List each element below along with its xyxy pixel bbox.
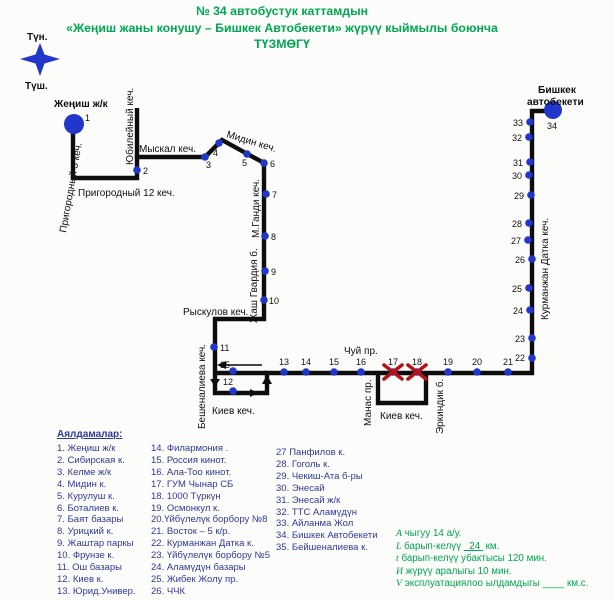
map-label: Курманжан Датка кеч. xyxy=(540,218,551,320)
stop-dot-30 xyxy=(525,171,533,179)
legend-item: 6. Боталиев к. xyxy=(57,503,136,515)
terminal-number-1: 1 xyxy=(85,113,90,123)
legend-item: 19. Осмонкул к. xyxy=(151,503,270,515)
map-label: М.Ганди кеч. xyxy=(251,179,262,238)
page: № 34 автобустук каттамдын «Жеңиш жаны ко… xyxy=(0,0,614,600)
map-label: Юбилейный кеч. xyxy=(124,88,136,165)
stop-number-5: 5 xyxy=(242,158,247,168)
legend-item: 24. Аламүдүн базары xyxy=(151,562,270,574)
legend-item: 25. Жибек Жолу пр. xyxy=(151,574,270,586)
stop-number-25: 25 xyxy=(512,284,522,294)
compass-star-icon xyxy=(20,43,60,76)
stats-text: км. xyxy=(483,541,499,552)
stop-number-23: 23 xyxy=(515,334,525,344)
stop-dot-7 xyxy=(262,190,270,198)
stats-line: V эксплуатациялоо ылдамдыгы ____ км.с. xyxy=(396,578,588,591)
stop-dot-19 xyxy=(444,368,452,376)
stats-text: барып-келүү xyxy=(401,541,463,552)
stop-number-4: 4 xyxy=(213,148,218,158)
terminal-number-34: 34 xyxy=(547,121,557,131)
stop-number-20: 20 xyxy=(472,357,482,367)
stop-number-19: 19 xyxy=(443,357,453,367)
legend-item: 18. 1000 Түркүн xyxy=(151,491,270,503)
legend-item: 28. Гоголь к. xyxy=(276,459,378,471)
map-label: Жеңиш ж/к xyxy=(53,99,109,110)
map-label: Мыскал кеч. xyxy=(139,144,196,155)
stop-dot-16 xyxy=(357,368,365,376)
legend-item: 34. Бишкек Автобекети xyxy=(276,530,378,542)
legend-item: 26. ЧЧК xyxy=(151,586,270,598)
legend-item: 12. Киев к. xyxy=(57,574,136,586)
legend-item: 8. Урицкий к. xyxy=(57,526,136,538)
stop-number-24: 24 xyxy=(513,306,523,316)
stop-dot-27 xyxy=(524,236,532,244)
stop-dot-24 xyxy=(526,306,534,314)
stop-number-28: 28 xyxy=(512,219,522,229)
legend-item: 30. Энесай xyxy=(276,483,378,495)
legend-item: 31. Энесай ж/к xyxy=(276,495,378,507)
compass-north-label: Түн. xyxy=(27,32,48,43)
stop-number-9: 9 xyxy=(271,267,276,277)
stats-line: И жүрүү аралыгы 10 мин. xyxy=(396,566,588,579)
stop-number-12: 12 xyxy=(223,377,233,387)
legend-item: 27 Панфилов к. xyxy=(276,447,378,459)
compass-south-label: Түш. xyxy=(25,81,48,92)
map-label: Киев кеч. xyxy=(380,411,423,422)
stop-dot-26 xyxy=(528,255,536,263)
stop-number-3: 3 xyxy=(206,160,211,170)
stop-dot-11 xyxy=(210,343,218,351)
stop-number-15: 15 xyxy=(329,357,339,367)
stop-dot-31 xyxy=(526,158,534,166)
legend-item: 3. Келме ж/к xyxy=(57,467,136,479)
stop-number-35: 35 xyxy=(220,360,230,370)
map-label: Киев кеч. xyxy=(212,406,255,417)
legend-item: 35. Бейшеналиева к. xyxy=(276,542,378,554)
stop-dot-21 xyxy=(504,368,512,376)
stop-dot-10 xyxy=(260,296,268,304)
map-label: Бешеналиева кеч. xyxy=(197,344,208,429)
stop-number-29: 29 xyxy=(514,191,524,201)
legend-item: 29. Чекиш-Ата б-ры xyxy=(276,471,378,483)
stop-number-31: 31 xyxy=(513,158,523,168)
stop-dot-20 xyxy=(473,368,481,376)
stop-number-6: 6 xyxy=(270,159,275,169)
stop-number-10: 10 xyxy=(269,296,279,306)
legend-column-3: 27 Панфилов к.28. Гоголь к.29. Чекиш-Ата… xyxy=(276,447,378,554)
stop-dot-23 xyxy=(528,334,536,342)
stop-number-2: 2 xyxy=(143,166,148,176)
stop-number-27: 27 xyxy=(511,236,521,246)
map-label: Жаш Гвардия б. xyxy=(248,248,260,323)
stop-dot-28 xyxy=(525,219,533,227)
legend-item: 13. Юрид.Универ. xyxy=(57,586,136,598)
map-label: Мидин кеч. xyxy=(225,129,277,155)
map-label: Чуй пр. xyxy=(344,346,378,357)
route-stats: А чыгуу 14 а/у.L барып-келүү 24 км.t бар… xyxy=(396,528,588,591)
legend-item: 20.Үйбүлелүк борбору №8 xyxy=(151,514,270,526)
stop-number-30: 30 xyxy=(512,171,522,181)
stop-number-22: 22 xyxy=(515,353,525,363)
stop-dot-33 xyxy=(526,118,534,126)
stop-dot-5 xyxy=(243,150,251,158)
legend-item: 11. Ош базары xyxy=(57,562,136,574)
stop-number-33: 33 xyxy=(513,118,523,128)
legend-item: 33. Айланма Жол xyxy=(276,518,378,530)
arrow-east-icon xyxy=(250,389,258,397)
stop-dot-4 xyxy=(215,139,223,147)
stats-text: эксплуатациялоо ылдамдыгы ____ км.с. xyxy=(402,578,588,589)
legend-item: 32. ТТС Аламүдүн xyxy=(276,507,378,519)
map-label: Пригородный 12 кеч. xyxy=(78,188,175,199)
legend-item: 5. Курулуш к. xyxy=(57,491,136,503)
stop-dot-6 xyxy=(260,159,268,167)
legend-item: 21. Восток – 5 к/р. xyxy=(151,526,270,538)
stop-number-17: 17 xyxy=(388,357,398,367)
map-label: Эркиндик б. xyxy=(434,379,446,434)
stop-number-11: 11 xyxy=(220,343,229,353)
stop-dot-13 xyxy=(280,368,288,376)
stop-number-21: 21 xyxy=(503,357,513,367)
stop-number-26: 26 xyxy=(515,255,525,265)
stop-dot-14 xyxy=(302,368,310,376)
stats-line: L барып-келүү 24 км. xyxy=(396,541,588,554)
stats-text: чыгуу 14 а/у. xyxy=(402,528,461,539)
legend-header: Аялдамалар: xyxy=(57,429,123,440)
stop-number-16: 16 xyxy=(356,357,366,367)
stop-number-13: 13 xyxy=(279,357,289,367)
map-label: Манас пр. xyxy=(363,379,374,426)
compass: Түн.Түш. xyxy=(20,32,60,92)
stop-number-7: 7 xyxy=(272,190,277,200)
stats-text: жүрүү аралыгы 10 мин. xyxy=(403,566,512,577)
legend-item: 7. Баят базары xyxy=(57,514,136,526)
legend-item: 16. Ала-Тоо кинот. xyxy=(151,467,270,479)
legend-item: 2. Сибирская к. xyxy=(57,455,136,467)
stop-number-14: 14 xyxy=(301,357,311,367)
stop-dot-29 xyxy=(527,191,535,199)
legend-item: 10. Фрунзе к. xyxy=(57,550,136,562)
stats-line: t барып-келүү убактысы 120 мин. xyxy=(396,553,588,566)
stats-value-underlined: 24 xyxy=(464,541,483,552)
map-label: Бишкек xyxy=(538,85,577,96)
legend-item: 15. Россия кинот. xyxy=(151,455,270,467)
legend-column-1: 1. Жеңиш ж/к2. Сибирская к.3. Келме ж/к4… xyxy=(57,443,136,598)
stats-line: А чыгуу 14 а/у. xyxy=(396,528,588,541)
stop-dot-32 xyxy=(525,133,533,141)
legend-item: 14. Филармония . xyxy=(151,443,270,455)
stop-dot-15 xyxy=(330,368,338,376)
stats-text: барып-келүү убактысы 120 мин. xyxy=(399,553,547,564)
arrow-north-icon xyxy=(262,375,272,384)
legend-column-2: 14. Филармония .15. Россия кинот.16. Ала… xyxy=(151,443,270,598)
street-labels: Жеңиш ж/кБишкекавтобекетиПригородный 3 к… xyxy=(53,85,584,434)
stop-number-32: 32 xyxy=(512,133,522,143)
stop-dot-8 xyxy=(261,232,269,240)
map-label: Рыскулов кеч. xyxy=(183,307,248,318)
stop-dot-22 xyxy=(528,354,536,362)
legend-item: 22. Курманжан Датка к. xyxy=(151,538,270,550)
stop-dot-12 xyxy=(229,387,237,395)
stop-dot-35 xyxy=(229,367,237,375)
stop-dot-2 xyxy=(133,166,141,174)
terminal-dot-1 xyxy=(64,114,84,134)
legend-item: 1. Жеңиш ж/к xyxy=(57,443,136,455)
stop-dot-9 xyxy=(261,267,269,275)
stop-number-8: 8 xyxy=(271,232,276,242)
arrow-south-icon xyxy=(210,379,220,387)
legend-item: 4. Мидин к. xyxy=(57,479,136,491)
legend-item: 23. Үйбүлелүк борбору №5 xyxy=(151,550,270,562)
legend-item: 9. Жаштар паркы xyxy=(57,538,136,550)
map-label: автобекети xyxy=(527,96,584,108)
stop-dot-25 xyxy=(525,284,533,292)
stop-number-18: 18 xyxy=(412,357,422,367)
legend-item: 17. ГУМ Чынар СБ xyxy=(151,479,270,491)
